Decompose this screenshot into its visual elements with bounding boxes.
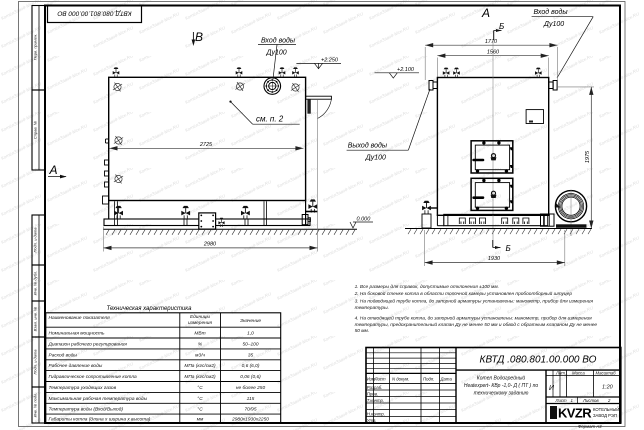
- svg-text:Пров.: Пров.: [367, 392, 378, 397]
- svg-text:Температура уходящих газов: Температура уходящих газов: [49, 385, 117, 391]
- svg-text:Подп. и дата: Подп. и дата: [33, 227, 38, 253]
- svg-text:А: А: [481, 6, 490, 20]
- svg-text:Б: Б: [499, 22, 504, 31]
- svg-text:температуры.: температуры.: [355, 306, 389, 311]
- svg-text:техническому заданию: техническому заданию: [474, 391, 529, 397]
- svg-text:Габариты котла (длина х ширина: Габариты котла (длина х ширина х высота): [49, 417, 151, 423]
- svg-text:Разраб.: Разраб.: [367, 385, 383, 390]
- svg-text:Вход воды: Вход воды: [261, 37, 296, 45]
- svg-text:Диапазон рабочего регулировани: Диапазон рабочего регулирования: [48, 341, 128, 347]
- svg-text:не более 250: не более 250: [236, 385, 266, 391]
- svg-text:Лист: Лист: [374, 377, 386, 382]
- svg-text:Номинальная мощность: Номинальная мощность: [49, 331, 106, 337]
- svg-text:1930: 1930: [488, 256, 501, 262]
- svg-text:0.000: 0.000: [357, 217, 372, 223]
- svg-text:KVZR: KVZR: [558, 406, 592, 421]
- svg-text:2980х1930х2250: 2980х1930х2250: [231, 417, 269, 423]
- svg-text:115: 115: [247, 396, 255, 402]
- svg-text:м3/ч: м3/ч: [195, 352, 205, 358]
- svg-text:КВТД.080.801.00.000 ВО: КВТД.080.801.00.000 ВО: [57, 10, 131, 17]
- svg-text:Ду100: Ду100: [365, 155, 386, 162]
- svg-text:Выход воды: Выход воды: [348, 142, 388, 150]
- svg-text:Взам. инв. №: Взам. инв. №: [33, 306, 38, 331]
- svg-text:Инв. № дубл.: Инв. № дубл.: [33, 271, 38, 296]
- svg-text:Н.контр.: Н.контр.: [367, 412, 385, 417]
- svg-text:1770: 1770: [485, 39, 498, 45]
- svg-text:Листов: Листов: [582, 398, 599, 403]
- svg-text:Лит.: Лит.: [555, 370, 566, 375]
- svg-text:Подп.: Подп.: [423, 377, 434, 382]
- svg-text:35: 35: [248, 352, 254, 358]
- svg-text:А: А: [49, 163, 58, 177]
- svg-text:%: %: [198, 341, 203, 347]
- svg-text:МВт: МВт: [194, 331, 205, 337]
- svg-text:3. На подводящей трубе котла,: 3. На подводящей трубе котла, до запорно…: [355, 298, 594, 305]
- svg-text:0,06 (0,6): 0,06 (0,6): [240, 374, 261, 380]
- svg-text:Котел Водогрейный: Котел Водогрейный: [477, 375, 526, 382]
- svg-text:Инв. № подл.: Инв. № подл.: [33, 393, 38, 418]
- svg-text:Лист: Лист: [555, 398, 567, 403]
- svg-text:Утв.: Утв.: [367, 418, 377, 423]
- svg-text:измерения: измерения: [188, 321, 212, 326]
- svg-text:см. п. 2: см. п. 2: [256, 115, 284, 124]
- svg-text:ЗАВОД РЭП: ЗАВОД РЭП: [593, 413, 617, 418]
- svg-text:2980: 2980: [203, 242, 217, 248]
- svg-text:Вход воды: Вход воды: [534, 8, 569, 16]
- svg-text:1975: 1975: [585, 150, 591, 163]
- svg-text:1560: 1560: [487, 50, 500, 56]
- svg-text:0,6 (6,0): 0,6 (6,0): [242, 363, 260, 369]
- svg-text:1. Все размеры для справок, до: 1. Все размеры для справок, допустимые о…: [355, 284, 499, 290]
- svg-text:Значение: Значение: [240, 318, 261, 324]
- svg-text:Рабочее давление воды: Рабочее давление воды: [49, 363, 103, 369]
- svg-text:Перв. примен.: Перв. примен.: [33, 34, 38, 61]
- svg-text:+2.250: +2.250: [321, 58, 339, 64]
- svg-text:2. На боковой стенке котла в о: 2. На боковой стенке котла в области топ…: [354, 290, 573, 297]
- svg-text:1,0: 1,0: [247, 331, 254, 337]
- svg-text:4. На отводящей трубе котла, д: 4. На отводящей трубе котла, до запорной…: [355, 314, 593, 321]
- svg-text:N докум.: N докум.: [392, 377, 409, 382]
- svg-text:Подп. и дата: Подп. и дата: [33, 349, 38, 375]
- svg-text:Дата: Дата: [440, 377, 453, 382]
- svg-text:°С: °С: [197, 407, 203, 413]
- svg-text:температуры, предохранительный: температуры, предохранительный клапан Ду…: [355, 321, 598, 328]
- svg-text:Температура воды (Вход/Выход): Температура воды (Вход/Выход): [49, 407, 124, 413]
- svg-text:50–100: 50–100: [242, 341, 258, 347]
- svg-text:Т.контр.: Т.контр.: [367, 398, 384, 403]
- svg-text:Heatexpert- КВр -1,0- Д ( ПТ ): Heatexpert- КВр -1,0- Д ( ПТ ) по: [464, 383, 538, 389]
- svg-text:Б: Б: [506, 244, 511, 253]
- svg-text:МПа (кгс/см2): МПа (кгс/см2): [184, 374, 216, 380]
- svg-text:Масштаб: Масштаб: [596, 370, 617, 375]
- svg-text:+2.100: +2.100: [397, 67, 415, 73]
- svg-text:Наименование показателя: Наименование показателя: [49, 315, 111, 321]
- svg-text:Ду100: Ду100: [543, 21, 564, 28]
- svg-text:°С: °С: [197, 396, 203, 402]
- svg-text:50 мм.: 50 мм.: [355, 328, 370, 334]
- svg-text:Расход воды: Расход воды: [49, 352, 78, 358]
- svg-text:Единицы: Единицы: [190, 314, 211, 320]
- svg-text:°С: °С: [197, 385, 203, 391]
- svg-text:Гидравлическое сопротивление к: Гидравлическое сопротивление котла: [49, 374, 137, 380]
- svg-text:Максимальная рабочая температу: Максимальная рабочая температура воды: [49, 396, 148, 402]
- svg-text:70/95: 70/95: [244, 407, 256, 413]
- svg-text:КОТЕЛЬНЫЙ: КОТЕЛЬНЫЙ: [593, 407, 619, 412]
- svg-text:мм: мм: [197, 418, 204, 423]
- svg-text:МПа (кгс/см2): МПа (кгс/см2): [184, 363, 216, 369]
- svg-text:1:20: 1:20: [602, 385, 614, 391]
- svg-text:КВТД .080.801.00.000 ВО: КВТД .080.801.00.000 ВО: [480, 355, 597, 366]
- svg-text:В: В: [195, 30, 203, 44]
- svg-text:Техническая характеристика: Техническая характеристика: [107, 306, 193, 312]
- svg-text:2725: 2725: [199, 142, 213, 148]
- svg-text:Формат А3: Формат А3: [578, 424, 602, 429]
- svg-text:Справ. №: Справ. №: [33, 120, 38, 139]
- svg-text:Масса: Масса: [572, 370, 585, 375]
